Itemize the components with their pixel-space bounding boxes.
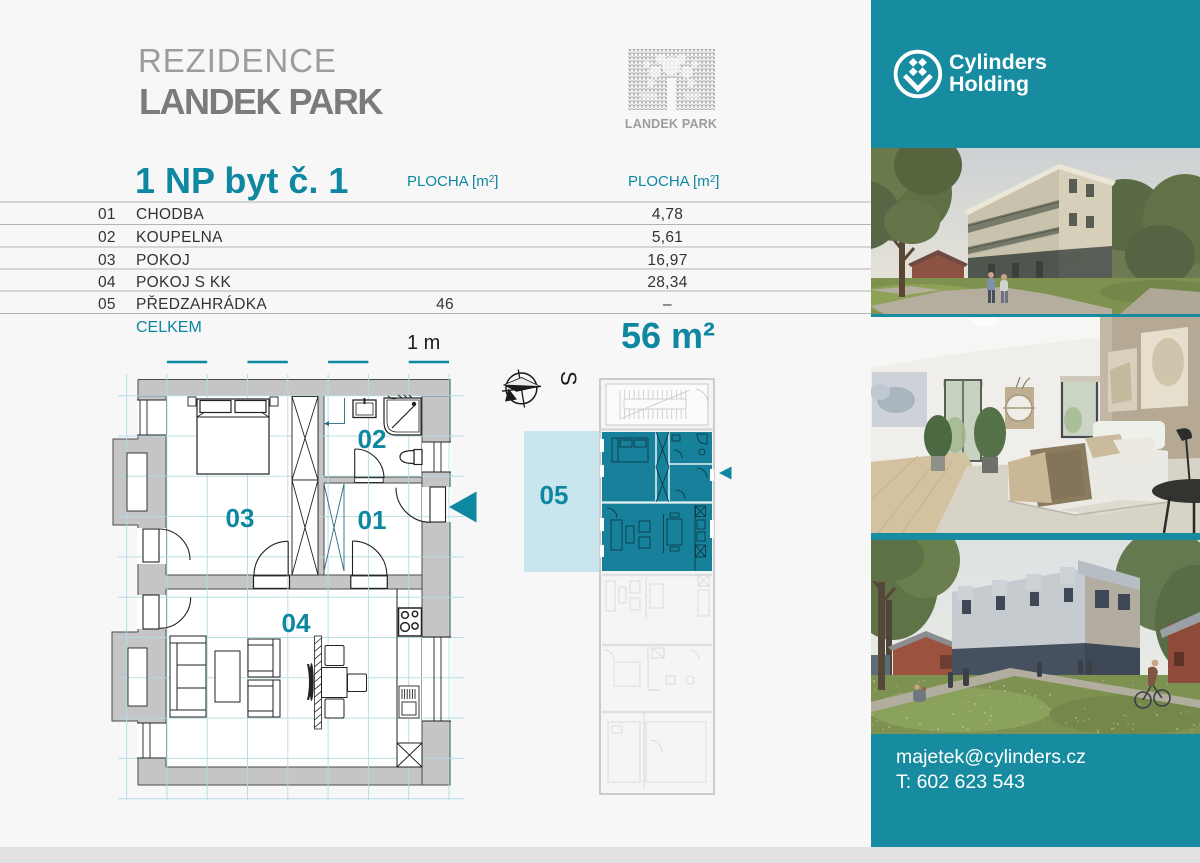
svg-text:S: S — [556, 371, 581, 386]
svg-text:05: 05 — [540, 480, 569, 510]
svg-text:02: 02 — [358, 424, 387, 454]
svg-text:04: 04 — [282, 608, 311, 638]
svg-text:01: 01 — [358, 505, 387, 535]
svg-text:LANDEK PARK: LANDEK PARK — [625, 117, 717, 131]
svg-text:03: 03 — [226, 503, 255, 533]
